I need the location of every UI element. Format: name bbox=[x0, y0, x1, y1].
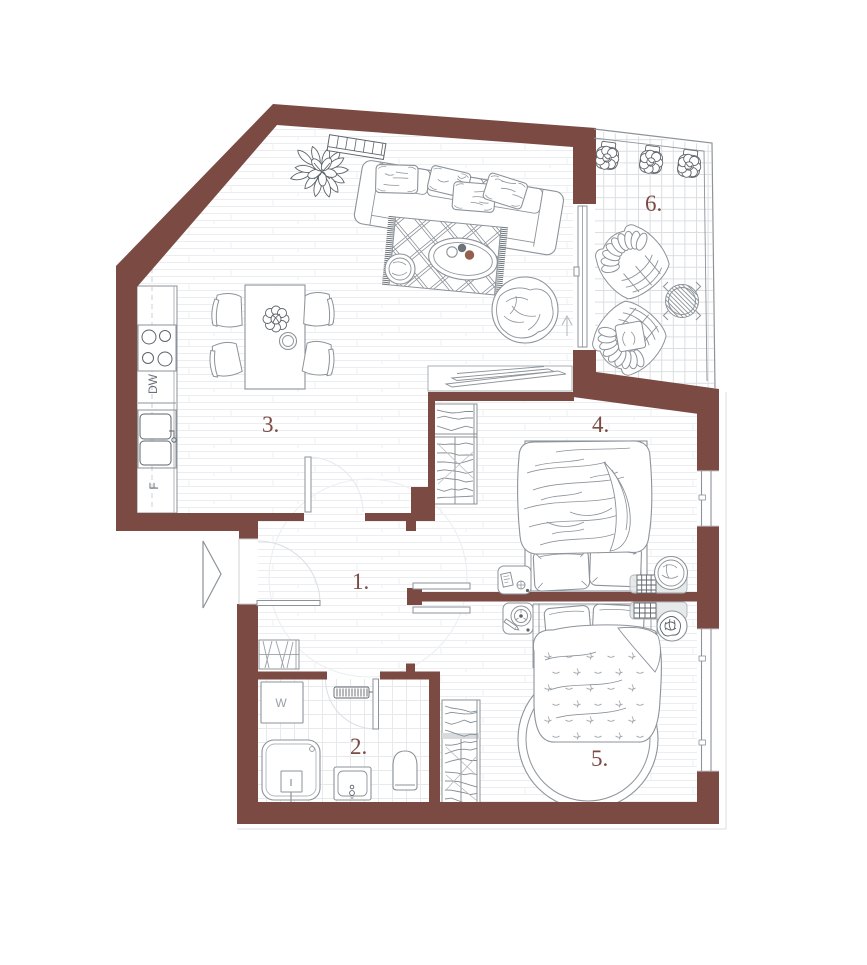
svg-text:3.: 3. bbox=[262, 412, 279, 437]
svg-text:1.: 1. bbox=[352, 569, 369, 594]
svg-text:F: F bbox=[147, 482, 161, 489]
svg-text:W: W bbox=[275, 696, 287, 710]
svg-text:2.: 2. bbox=[350, 734, 367, 759]
svg-text:5.: 5. bbox=[591, 746, 608, 771]
svg-text:DW: DW bbox=[146, 373, 160, 394]
svg-text:4.: 4. bbox=[592, 412, 609, 437]
svg-text:6.: 6. bbox=[645, 191, 662, 216]
